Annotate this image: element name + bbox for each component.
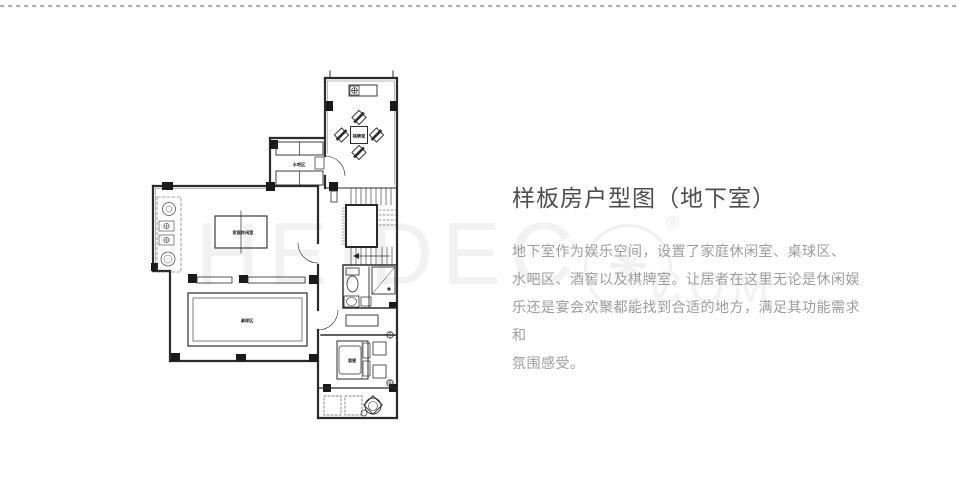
page-title: 样板房户型图（地下室） bbox=[512, 184, 860, 214]
bathroom bbox=[343, 265, 397, 308]
article: 样板房户型图（地下室） 地下室作为娱乐空间，设置了家庭休闲室、桌球区、 水吧区、… bbox=[512, 184, 860, 377]
top-dashed-divider bbox=[0, 5, 958, 7]
staircase bbox=[342, 188, 396, 265]
description-line: 水吧区、酒窖以及棋牌室。让居者在这里无论是休闲娱 bbox=[512, 265, 860, 293]
description-line: 乐还是宴会欢聚都能找到合适的地方，满足其功能需求和 bbox=[512, 293, 860, 349]
room-card: 棋牌室 bbox=[325, 85, 384, 176]
description-line: 地下室作为娱乐空间，设置了家庭休闲室、桌球区、 bbox=[512, 237, 860, 265]
room-label-card: 棋牌室 bbox=[352, 133, 366, 140]
page: HEIDEC ❋ ® .COM bbox=[0, 0, 958, 503]
equipment-area bbox=[324, 396, 382, 416]
description-line: 氛围感受。 bbox=[512, 349, 860, 377]
room-label-cellar: 酒窖 bbox=[348, 357, 356, 364]
room-billiards: 桌球区 bbox=[188, 293, 307, 346]
description: 地下室作为娱乐空间，设置了家庭休闲室、桌球区、 水吧区、酒窖以及棋牌室。让居者在… bbox=[512, 237, 860, 377]
room-family: 家庭休闲室 bbox=[197, 211, 318, 283]
room-label-family: 家庭休闲室 bbox=[233, 229, 255, 236]
room-label-billiards: 桌球区 bbox=[240, 317, 254, 324]
bar-cabinets bbox=[157, 197, 181, 272]
room-bar: 水吧区 bbox=[276, 142, 337, 202]
room-cellar: 酒窖 bbox=[318, 310, 397, 388]
room-label-bar: 水吧区 bbox=[293, 161, 306, 168]
floorplan-image: 棋牌室 水吧区 家庭休闲室 bbox=[140, 58, 440, 443]
